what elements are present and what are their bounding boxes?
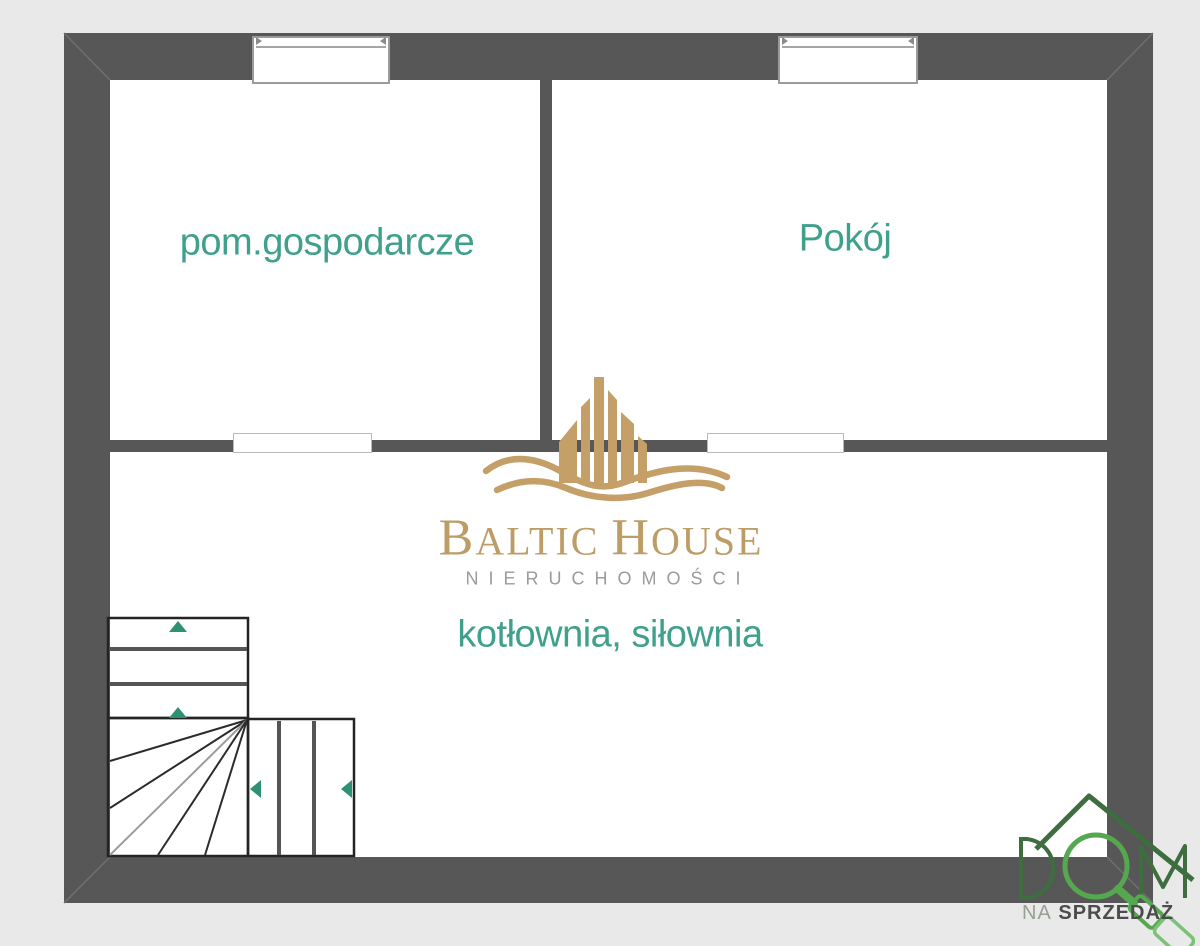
wall-bottom [64,857,1153,903]
window-sill-icon [782,38,914,48]
brand-text: ALTIC [475,519,611,564]
brand-text: OUSE [651,519,763,564]
brand-initial: B [439,510,476,567]
room-label-bedroom: Pokój [799,218,892,261]
door-opening-2 [707,433,844,453]
stair-arrow-left-icon [341,780,352,798]
stair-arrow-left-icon [250,780,261,798]
baltic-house-wordmark: BALTIC HOUSE [439,509,764,568]
brand-initial: H [611,510,651,567]
dom-tagline: NA SPRZEDAŻ [1022,902,1174,925]
floor-plan: pom.gospodarcze Pokój kotłownia, siłowni… [0,0,1200,946]
window-2 [778,36,918,84]
wall-left [64,33,110,903]
tagline-prefix: NA [1022,902,1052,924]
stair-arrow-up-icon [169,621,187,632]
tagline-main: SPRZEDAŻ [1052,902,1174,924]
wall-partition-vertical [540,80,552,440]
stair-arrow-up-icon [169,707,187,718]
window-sill-icon [256,38,386,48]
window-1 [252,36,390,84]
room-label-boiler: kotłownia, siłownia [457,614,762,657]
wall-top [64,33,1153,80]
plan-interior [110,80,1107,857]
baltic-house-subtitle: NIERUCHOMOŚCI [465,569,750,590]
wall-right [1107,33,1153,903]
room-label-utility: pom.gospodarcze [180,222,475,265]
door-opening-1 [233,433,372,453]
